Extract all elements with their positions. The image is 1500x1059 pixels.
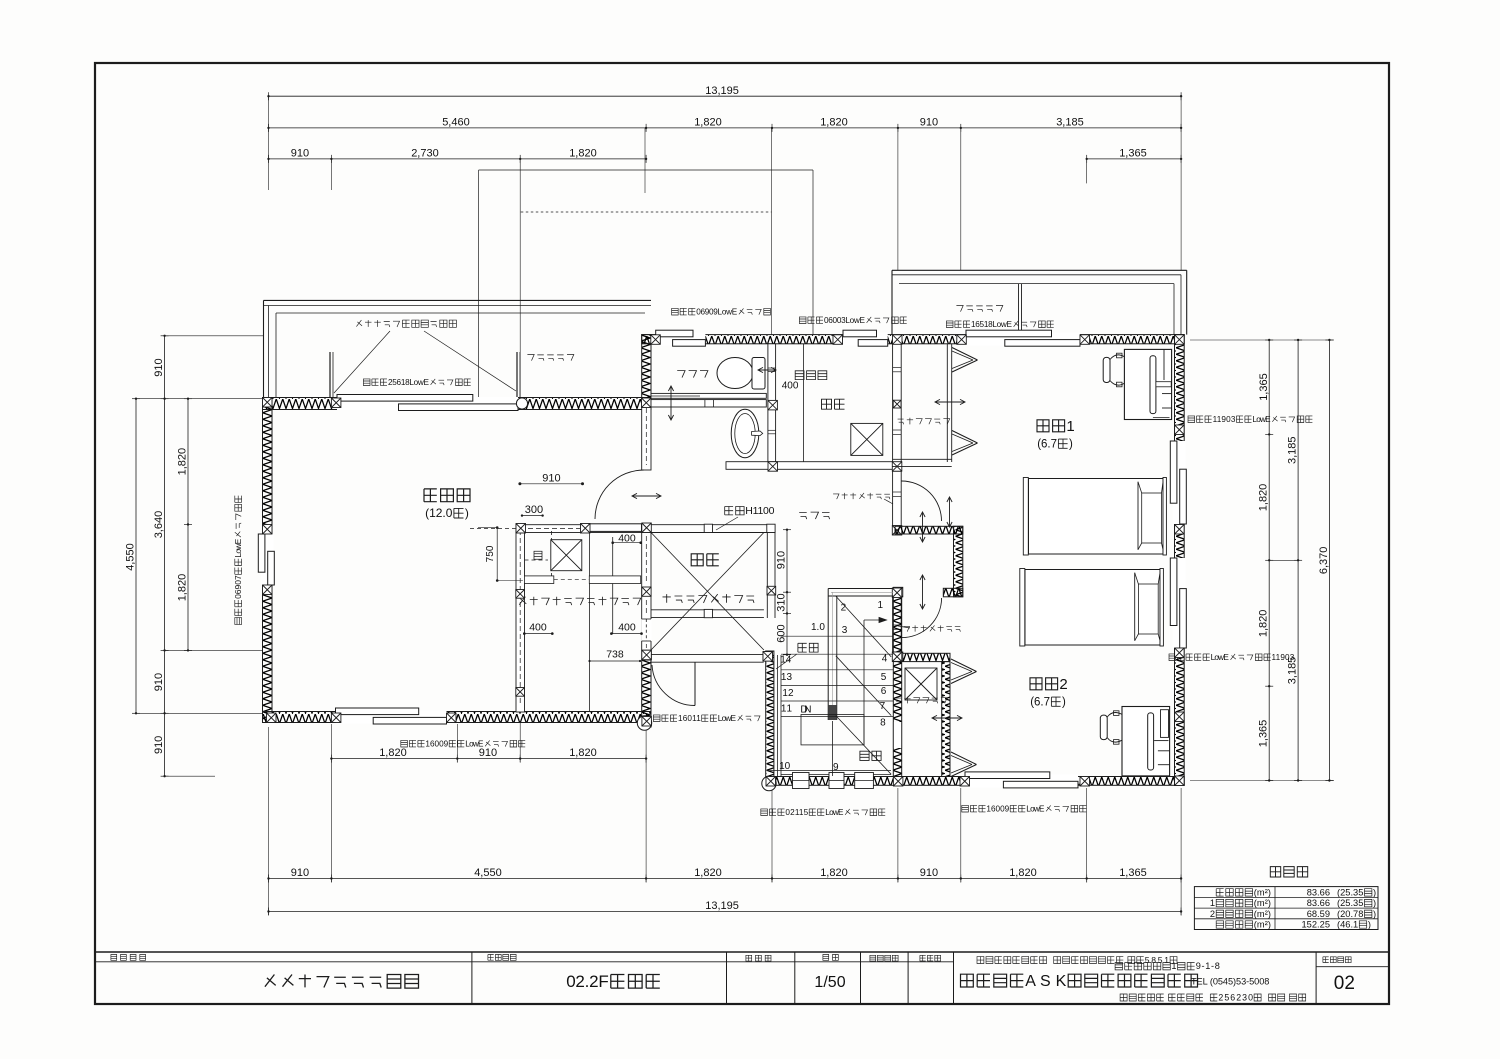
svg-text:11: 11 xyxy=(781,703,793,714)
svg-text:(6.7: (6.7 xyxy=(1030,697,1050,709)
svg-text:(m²): (m²) xyxy=(1254,898,1271,908)
svg-text:3,185: 3,185 xyxy=(1287,437,1299,465)
svg-text:06907: 06907 xyxy=(233,575,243,599)
svg-text:910: 910 xyxy=(291,867,309,879)
svg-text:5,460: 5,460 xyxy=(442,117,470,129)
svg-text:13: 13 xyxy=(781,672,793,683)
svg-text:): ) xyxy=(1069,439,1073,451)
svg-text:1,365: 1,365 xyxy=(1258,720,1270,748)
svg-text:): ) xyxy=(1373,898,1376,908)
svg-text:11903: 11903 xyxy=(1213,415,1236,424)
svg-text:1,820: 1,820 xyxy=(1258,484,1270,512)
svg-text:(20.78: (20.78 xyxy=(1337,909,1363,919)
svg-text:1: 1 xyxy=(1210,898,1215,908)
svg-text:02.2F: 02.2F xyxy=(566,972,609,991)
svg-text:910: 910 xyxy=(153,673,165,691)
svg-text:6: 6 xyxy=(881,686,887,697)
svg-text:LowE: LowE xyxy=(718,714,737,723)
svg-text:LowE: LowE xyxy=(1252,415,1271,424)
svg-text:06909LowE: 06909LowE xyxy=(696,307,738,316)
svg-text:910: 910 xyxy=(153,736,165,754)
svg-text:256230: 256230 xyxy=(1218,992,1253,1002)
svg-text:310: 310 xyxy=(776,593,788,611)
svg-text:1,820: 1,820 xyxy=(177,574,189,602)
svg-text:1,820: 1,820 xyxy=(569,147,597,159)
svg-text:1,820: 1,820 xyxy=(1009,867,1036,879)
svg-text:910: 910 xyxy=(291,147,309,159)
svg-text:): ) xyxy=(1368,920,1371,930)
svg-text:1: 1 xyxy=(878,600,884,611)
svg-text:4: 4 xyxy=(882,653,888,664)
svg-text:(m²): (m²) xyxy=(1254,888,1271,898)
svg-text:(25.35: (25.35 xyxy=(1337,898,1363,908)
svg-text:1,820: 1,820 xyxy=(569,747,597,759)
svg-text:(25.35: (25.35 xyxy=(1337,888,1363,898)
svg-text:9-1-8: 9-1-8 xyxy=(1196,961,1220,971)
svg-text:16011: 16011 xyxy=(678,714,701,723)
svg-text:12: 12 xyxy=(782,688,794,699)
svg-text:DN: DN xyxy=(800,704,811,715)
svg-text:83.66: 83.66 xyxy=(1307,898,1330,908)
svg-text:LowE: LowE xyxy=(1211,653,1230,662)
svg-text:): ) xyxy=(465,506,469,520)
svg-text:A S K: A S K xyxy=(1025,973,1066,990)
svg-text:02: 02 xyxy=(1334,973,1355,994)
svg-text:(46.1: (46.1 xyxy=(1337,920,1358,930)
svg-text:LowE: LowE xyxy=(465,739,484,748)
svg-text:910: 910 xyxy=(776,551,788,569)
svg-text:910: 910 xyxy=(153,358,165,376)
svg-text:1,820: 1,820 xyxy=(694,117,722,129)
svg-text:400: 400 xyxy=(782,381,799,392)
svg-text:1,820: 1,820 xyxy=(1258,610,1270,638)
svg-text:14: 14 xyxy=(780,655,792,666)
svg-text:738: 738 xyxy=(606,649,624,661)
svg-text:1,820: 1,820 xyxy=(820,117,848,129)
svg-text:750: 750 xyxy=(485,545,496,562)
svg-text:1.0: 1.0 xyxy=(811,622,825,633)
svg-text:6,370: 6,370 xyxy=(1318,547,1330,575)
svg-text:LowE: LowE xyxy=(1026,804,1045,813)
svg-text:LowE: LowE xyxy=(825,808,844,817)
svg-text:2: 2 xyxy=(841,602,847,613)
svg-text:910: 910 xyxy=(479,747,497,759)
svg-text:(12.0: (12.0 xyxy=(425,506,453,520)
svg-text:3,640: 3,640 xyxy=(153,511,165,539)
svg-text:TEL (0545)53-5008: TEL (0545)53-5008 xyxy=(1191,977,1269,987)
svg-text:4,550: 4,550 xyxy=(474,867,502,879)
svg-text:1,820: 1,820 xyxy=(694,867,722,879)
svg-text:4,550: 4,550 xyxy=(125,543,137,571)
svg-text:06003LowE: 06003LowE xyxy=(824,316,866,325)
svg-text:13,195: 13,195 xyxy=(705,900,739,912)
svg-text:1/50: 1/50 xyxy=(814,974,845,991)
svg-text:1: 1 xyxy=(1171,961,1176,971)
svg-text:10: 10 xyxy=(779,761,791,772)
svg-text:LowE: LowE xyxy=(233,538,243,557)
svg-text:16518LowE: 16518LowE xyxy=(971,320,1013,329)
svg-text:): ) xyxy=(1373,909,1376,919)
svg-text:9: 9 xyxy=(833,762,839,773)
svg-text:1,365: 1,365 xyxy=(1119,867,1147,879)
svg-text:02115: 02115 xyxy=(785,808,808,817)
svg-text:13,195: 13,195 xyxy=(705,85,739,97)
svg-text:1,365: 1,365 xyxy=(1258,373,1270,401)
svg-text:600: 600 xyxy=(776,624,788,642)
svg-text:2,730: 2,730 xyxy=(411,147,439,159)
svg-text:1,820: 1,820 xyxy=(379,747,407,759)
svg-text:400: 400 xyxy=(618,622,636,634)
svg-text:2: 2 xyxy=(1059,676,1067,693)
svg-text:910: 910 xyxy=(542,472,560,484)
svg-text:(6.7: (6.7 xyxy=(1037,439,1057,451)
svg-text:(m²): (m²) xyxy=(1254,920,1271,930)
svg-text:25618LowE: 25618LowE xyxy=(388,378,430,387)
svg-text:H1100: H1100 xyxy=(745,505,774,517)
svg-text:(m²): (m²) xyxy=(1254,909,1271,919)
svg-text:152.25: 152.25 xyxy=(1302,920,1331,930)
svg-text:2: 2 xyxy=(1210,909,1215,919)
svg-text:300: 300 xyxy=(525,504,543,516)
svg-text:8: 8 xyxy=(880,718,886,729)
svg-text:83.66: 83.66 xyxy=(1307,888,1330,898)
svg-text:3: 3 xyxy=(842,625,848,636)
svg-text:1,365: 1,365 xyxy=(1119,147,1147,159)
svg-text:16009: 16009 xyxy=(425,739,448,748)
svg-text:3,185: 3,185 xyxy=(1056,117,1084,129)
svg-text:1,820: 1,820 xyxy=(177,448,189,476)
svg-text:16009: 16009 xyxy=(986,804,1009,813)
svg-text:): ) xyxy=(1373,888,1376,898)
svg-text:7: 7 xyxy=(880,701,886,712)
svg-text:910: 910 xyxy=(920,117,938,129)
svg-text:1,820: 1,820 xyxy=(820,867,848,879)
svg-text:1: 1 xyxy=(1066,418,1074,435)
svg-text:5: 5 xyxy=(881,672,887,683)
svg-text:910: 910 xyxy=(920,867,938,879)
svg-text:68.59: 68.59 xyxy=(1307,909,1330,919)
svg-text:400: 400 xyxy=(529,622,547,634)
svg-text:11903: 11903 xyxy=(1272,653,1295,662)
svg-text:): ) xyxy=(1062,697,1066,709)
